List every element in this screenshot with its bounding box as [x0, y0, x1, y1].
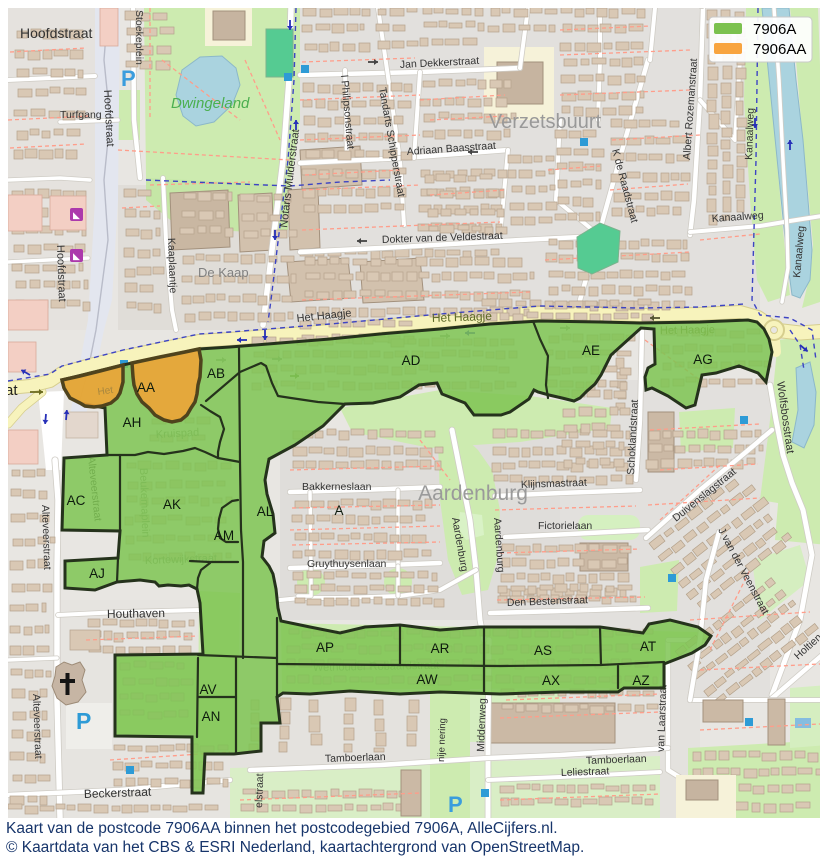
svg-text:Houthaven: Houthaven	[107, 606, 165, 621]
svg-text:Middenweg: Middenweg	[475, 698, 489, 752]
svg-text:van Laarstraat: van Laarstraat	[655, 685, 669, 753]
svg-text:7906AA: 7906AA	[753, 41, 806, 58]
svg-text:Fictorielaan: Fictorielaan	[538, 520, 592, 532]
svg-text:AE: AE	[582, 343, 600, 358]
svg-text:A: A	[334, 503, 343, 518]
svg-text:AX: AX	[542, 673, 560, 688]
svg-text:Leliestraat: Leliestraat	[561, 765, 610, 779]
svg-text:AP: AP	[316, 640, 334, 655]
svg-text:Dwingeland: Dwingeland	[171, 95, 250, 112]
svg-text:Hoofdstraat: Hoofdstraat	[20, 25, 92, 41]
svg-text:Hoofdstraat: Hoofdstraat	[54, 245, 68, 302]
svg-text:AT: AT	[640, 639, 656, 654]
svg-text:P: P	[448, 792, 463, 817]
svg-text:Beckerstraat: Beckerstraat	[84, 785, 152, 801]
svg-text:AV: AV	[199, 682, 216, 697]
svg-text:P: P	[121, 66, 136, 91]
svg-text:Kanaalweg: Kanaalweg	[743, 108, 757, 161]
svg-text:AB: AB	[207, 366, 225, 381]
svg-text:Kaaplaantje: Kaaplaantje	[165, 238, 179, 294]
svg-text:nije nering: nije nering	[436, 718, 449, 762]
svg-text:Klijnsmastraat: Klijnsmastraat	[521, 477, 587, 491]
svg-text:AD: AD	[402, 353, 421, 368]
svg-text:Alteveerstraat: Alteveerstraat	[39, 505, 53, 570]
svg-text:© Kaartdata van het CBS & ESRI: © Kaartdata van het CBS & ESRI Nederland…	[6, 839, 584, 856]
svg-text:AZ: AZ	[632, 673, 649, 688]
svg-text:Bakkerneslaan: Bakkerneslaan	[302, 481, 372, 493]
svg-text:Gruythuysenlaan: Gruythuysenlaan	[307, 558, 387, 570]
svg-text:Turfgang: Turfgang	[60, 109, 102, 121]
svg-text:AM: AM	[214, 528, 234, 543]
svg-text:AK: AK	[163, 497, 181, 512]
svg-text:AW: AW	[416, 672, 438, 687]
svg-text:Tamboerlaan: Tamboerlaan	[325, 751, 386, 765]
svg-text:Verzetsbuurt: Verzetsbuurt	[489, 111, 602, 133]
svg-text:AR: AR	[431, 641, 450, 656]
svg-text:Aardenburg: Aardenburg	[418, 482, 528, 505]
svg-text:De Kaap: De Kaap	[198, 265, 249, 280]
svg-text:Stoekeplein: Stoekeplein	[133, 10, 145, 65]
svg-text:AS: AS	[534, 643, 552, 658]
svg-text:AH: AH	[123, 415, 142, 430]
svg-text:AL: AL	[257, 504, 274, 519]
svg-text:AN: AN	[202, 709, 221, 724]
svg-text:◣: ◣	[73, 210, 80, 220]
svg-text:elstraat: elstraat	[253, 773, 266, 808]
svg-text:AJ: AJ	[89, 566, 105, 581]
svg-text:Alteveerstraat: Alteveerstraat	[30, 694, 44, 759]
svg-text:7906A: 7906A	[753, 21, 796, 38]
svg-text:Het Haagje: Het Haagje	[432, 309, 493, 325]
svg-text:P: P	[76, 708, 91, 734]
svg-text:Kaart van de postcode 7906AA b: Kaart van de postcode 7906AA binnen het …	[6, 820, 558, 837]
svg-text:◣: ◣	[73, 251, 80, 261]
svg-text:AA: AA	[137, 380, 155, 395]
svg-text:AG: AG	[693, 352, 713, 367]
svg-text:Het: Het	[97, 385, 114, 398]
svg-text:AC: AC	[67, 493, 86, 508]
